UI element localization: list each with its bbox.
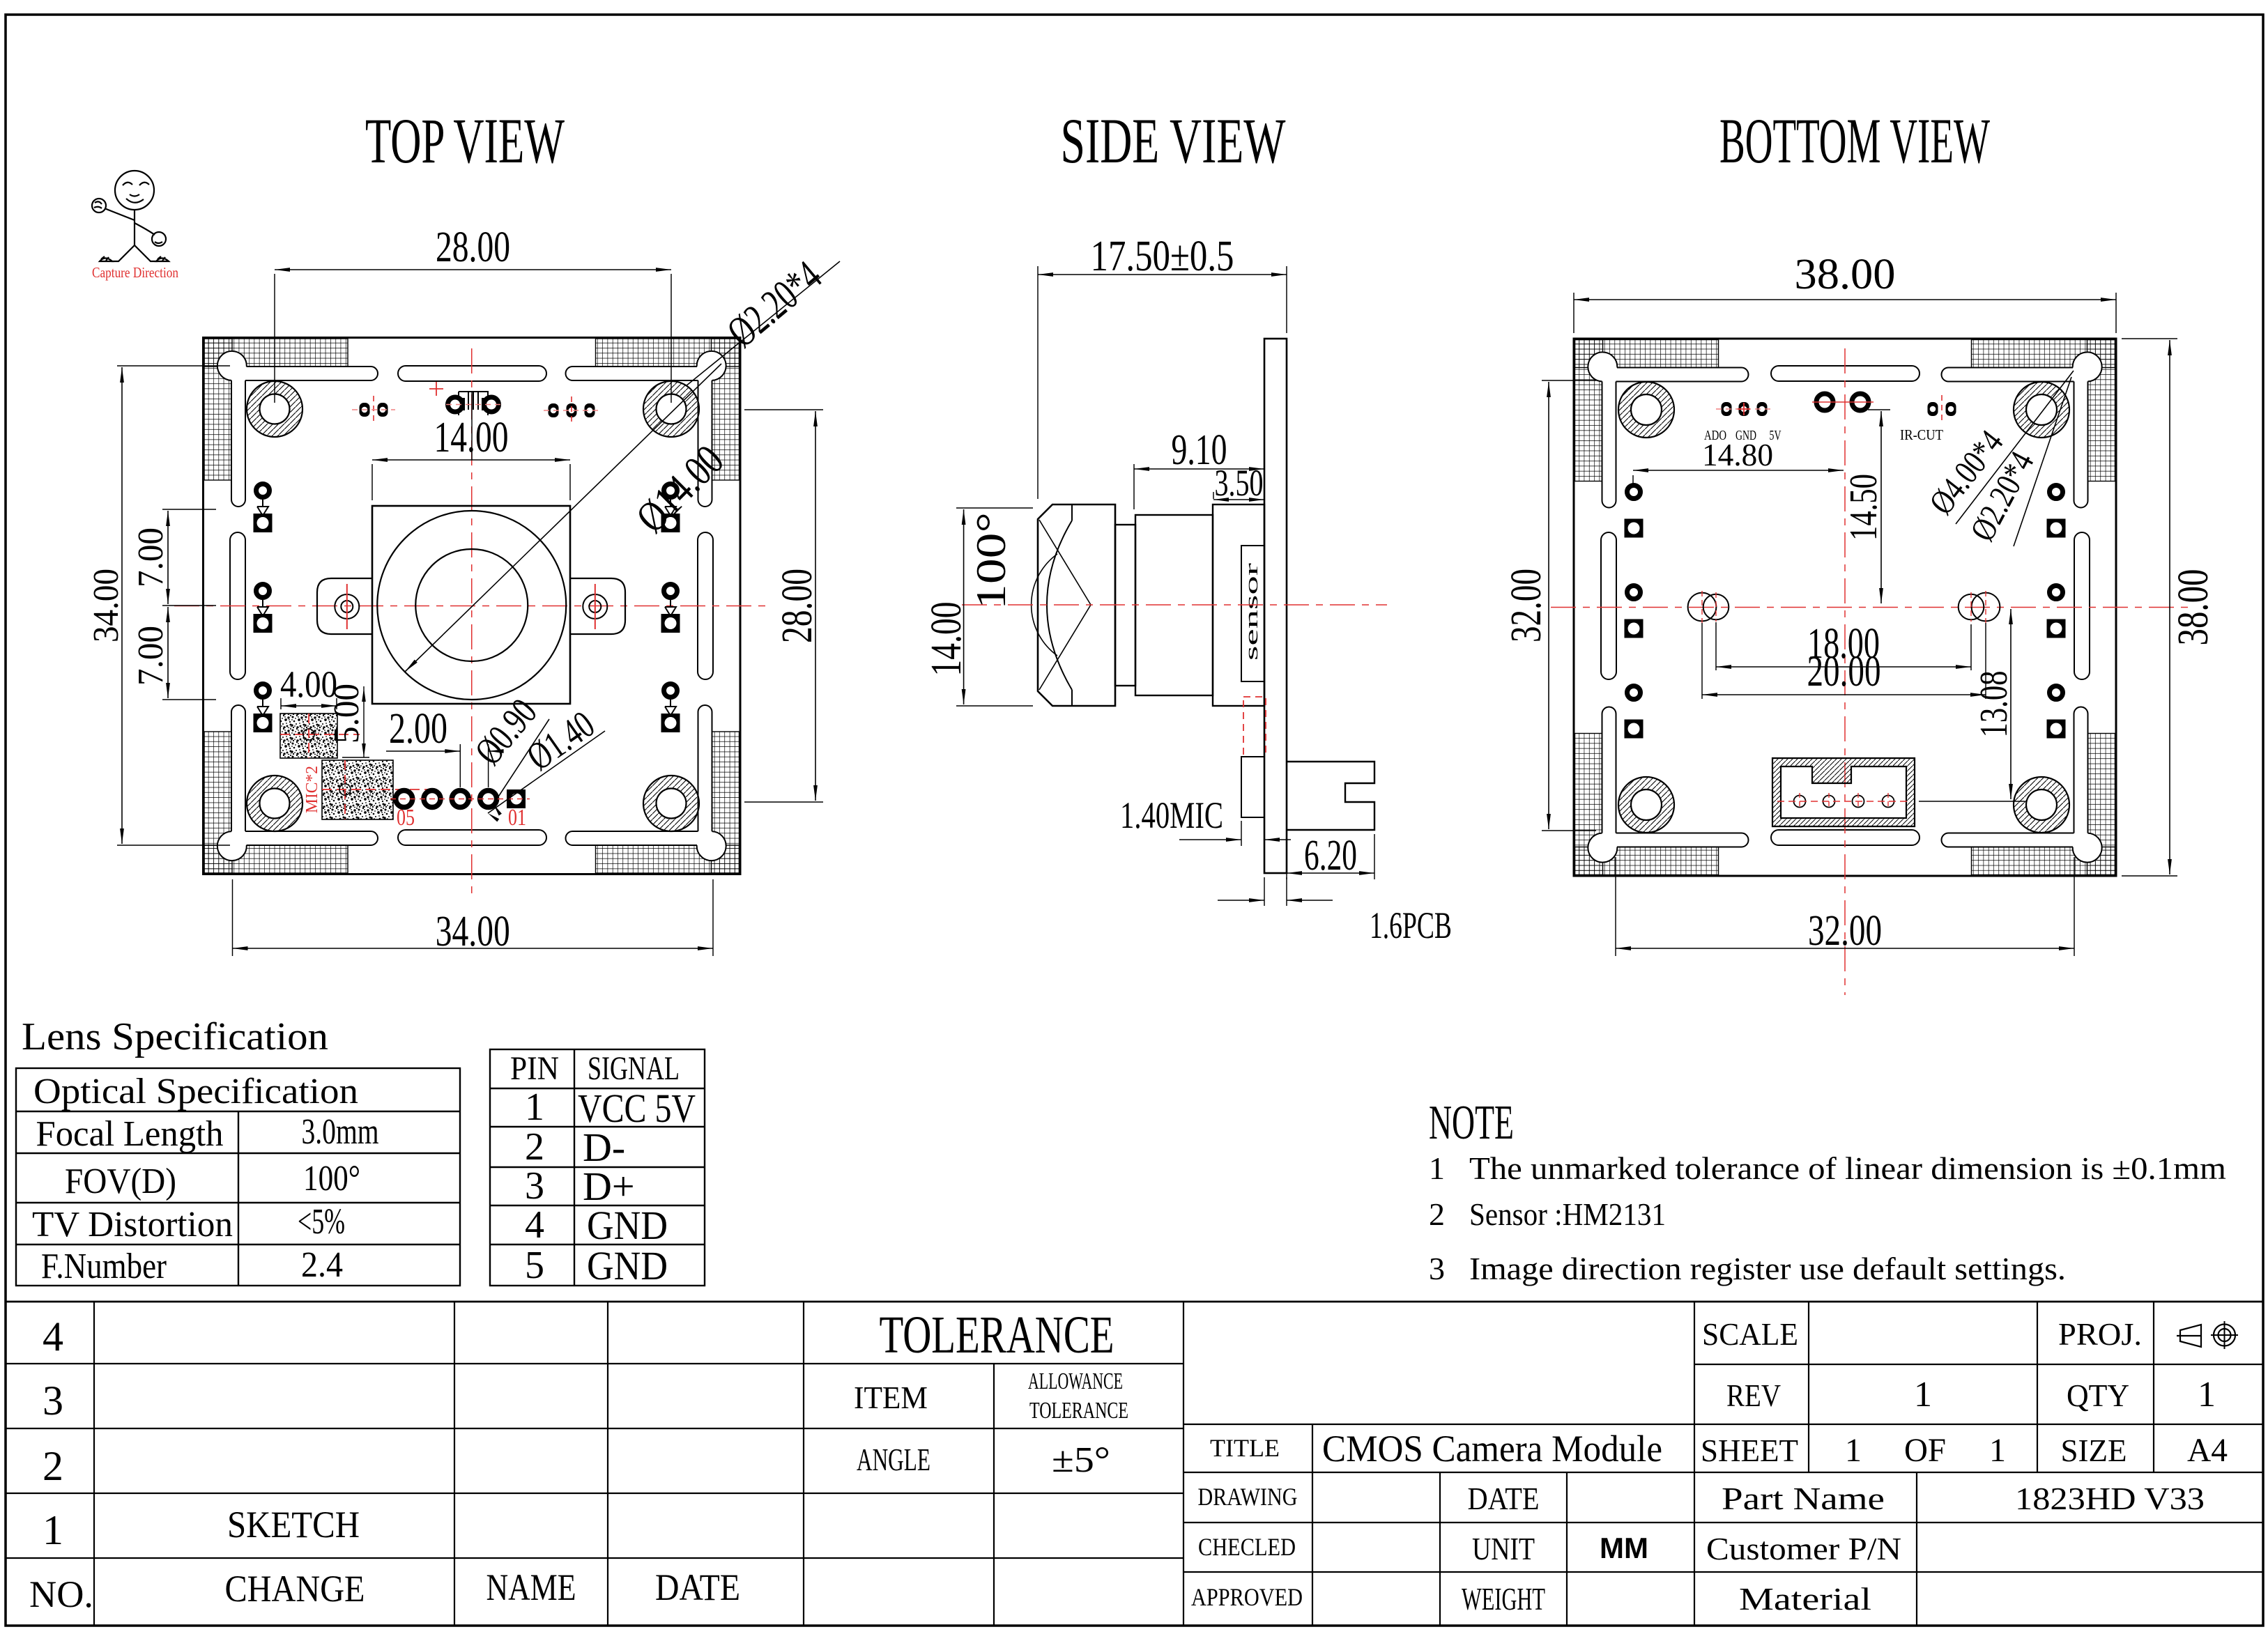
svg-text:A4: A4 xyxy=(2187,1432,2228,1469)
svg-text:TV Distortion: TV Distortion xyxy=(32,1205,233,1244)
svg-text:Part Name: Part Name xyxy=(1722,1481,1885,1516)
svg-text:1.6PCB: 1.6PCB xyxy=(1370,904,1452,946)
svg-text:BOTTOM VIEW: BOTTOM VIEW xyxy=(1719,105,1990,176)
svg-text:UNIT: UNIT xyxy=(1472,1531,1535,1566)
svg-text:TOLERANCE: TOLERANCE xyxy=(1029,1398,1128,1424)
svg-text:MIC*2: MIC*2 xyxy=(303,766,321,813)
svg-text:3: 3 xyxy=(525,1164,544,1208)
svg-text:TOLERANCE: TOLERANCE xyxy=(880,1306,1114,1364)
svg-text:TOP VIEW: TOP VIEW xyxy=(365,105,565,176)
svg-text:TITLE: TITLE xyxy=(1210,1434,1280,1462)
svg-text:3.50: 3.50 xyxy=(1215,462,1264,504)
svg-text:14.80: 14.80 xyxy=(1702,437,1773,472)
svg-text:Capture Direction: Capture Direction xyxy=(92,264,178,281)
svg-text:1: 1 xyxy=(1845,1432,1862,1469)
svg-text:ITEM: ITEM xyxy=(854,1380,928,1415)
svg-text:FOV(D): FOV(D) xyxy=(65,1162,176,1201)
svg-text:100°: 100° xyxy=(303,1159,360,1198)
svg-text:1.40MIC: 1.40MIC xyxy=(1120,794,1223,836)
svg-text:05: 05 xyxy=(397,805,415,831)
svg-text:NOTE: NOTE xyxy=(1429,1096,1514,1150)
svg-text:1: 1 xyxy=(1914,1375,1932,1415)
svg-text:7.00: 7.00 xyxy=(131,527,171,587)
svg-text:ANGLE: ANGLE xyxy=(857,1442,930,1477)
svg-text:SKETCH: SKETCH xyxy=(227,1504,360,1546)
svg-text:1: 1 xyxy=(1989,1432,2006,1469)
svg-text:GND: GND xyxy=(587,1243,668,1288)
svg-text:Focal Length: Focal Length xyxy=(36,1114,224,1154)
svg-text:SHEET: SHEET xyxy=(1701,1433,1798,1468)
svg-text:NO.: NO. xyxy=(29,1573,93,1615)
svg-text:28.00: 28.00 xyxy=(774,569,821,643)
svg-text:32.00: 32.00 xyxy=(1808,907,1882,955)
svg-text:Image direction register use d: Image direction register use default set… xyxy=(1469,1251,2066,1286)
svg-text:±5°: ±5° xyxy=(1052,1440,1110,1480)
svg-text:IR-CUT: IR-CUT xyxy=(1900,426,1943,443)
svg-text:Lens Specification: Lens Specification xyxy=(22,1015,328,1058)
svg-text:4: 4 xyxy=(43,1313,63,1359)
svg-text:OF: OF xyxy=(1904,1432,1946,1469)
svg-text:3: 3 xyxy=(43,1378,63,1424)
svg-text:Customer P/N: Customer P/N xyxy=(1706,1531,1901,1566)
svg-text:QTY: QTY xyxy=(2067,1378,2129,1413)
svg-text:4: 4 xyxy=(525,1203,544,1247)
svg-text:3: 3 xyxy=(1429,1251,1445,1286)
svg-text:34.00: 34.00 xyxy=(436,908,510,955)
svg-text:1: 1 xyxy=(2198,1375,2216,1415)
svg-text:CHECLED: CHECLED xyxy=(1198,1533,1296,1561)
svg-text:CHANGE: CHANGE xyxy=(225,1568,365,1610)
svg-text:CMOS Camera Module: CMOS Camera Module xyxy=(1322,1428,1662,1470)
svg-text:38.00: 38.00 xyxy=(2170,569,2217,646)
svg-text:1: 1 xyxy=(525,1086,544,1129)
svg-text:38.00: 38.00 xyxy=(1795,251,1896,298)
svg-text:5.00: 5.00 xyxy=(327,684,367,743)
svg-text:1823HD V33: 1823HD V33 xyxy=(2015,1481,2205,1516)
svg-text:GND: GND xyxy=(587,1203,668,1248)
svg-text:SCALE: SCALE xyxy=(1702,1316,1798,1352)
svg-text:<5%: <5% xyxy=(298,1202,345,1242)
svg-text:20.00: 20.00 xyxy=(1807,648,1881,695)
svg-text:28.00: 28.00 xyxy=(436,224,510,271)
svg-text:3.0mm: 3.0mm xyxy=(302,1112,379,1152)
svg-text:100°: 100° xyxy=(968,512,1014,610)
svg-text:14.00: 14.00 xyxy=(923,602,970,677)
svg-text:ALLOWANCE: ALLOWANCE xyxy=(1028,1369,1123,1394)
svg-text:13.08: 13.08 xyxy=(1972,671,2016,738)
svg-text:2: 2 xyxy=(525,1125,544,1169)
svg-text:14.00: 14.00 xyxy=(434,414,509,461)
svg-text:1: 1 xyxy=(1429,1150,1445,1186)
svg-text:NAME: NAME xyxy=(486,1566,576,1608)
svg-text:SIZE: SIZE xyxy=(2061,1433,2127,1468)
svg-text:DATE: DATE xyxy=(1468,1481,1540,1516)
svg-text:REV: REV xyxy=(1726,1378,1781,1413)
svg-text:SIDE VIEW: SIDE VIEW xyxy=(1061,105,1286,176)
svg-text:MM: MM xyxy=(1600,1532,1648,1564)
svg-text:Material: Material xyxy=(1739,1581,1871,1617)
svg-text:Optical Specification: Optical Specification xyxy=(33,1072,358,1111)
svg-text:sensor: sensor xyxy=(1241,562,1262,661)
svg-text:2.4: 2.4 xyxy=(301,1245,343,1285)
svg-text:6.20: 6.20 xyxy=(1304,832,1357,879)
svg-text:SIGNAL: SIGNAL xyxy=(588,1050,680,1087)
svg-text:2: 2 xyxy=(1429,1196,1445,1232)
svg-text:PIN: PIN xyxy=(510,1050,559,1087)
svg-text:2: 2 xyxy=(43,1443,63,1489)
svg-text:5: 5 xyxy=(525,1244,544,1287)
svg-text:17.50±0.5: 17.50±0.5 xyxy=(1091,233,1234,280)
svg-text:APPROVED: APPROVED xyxy=(1191,1583,1303,1611)
svg-text:34.00: 34.00 xyxy=(86,569,126,642)
svg-text:32.00: 32.00 xyxy=(1503,569,1550,642)
svg-text:DRAWING: DRAWING xyxy=(1198,1483,1298,1511)
svg-text:Sensor :HM2131: Sensor :HM2131 xyxy=(1469,1196,1666,1232)
svg-text:WEIGHT: WEIGHT xyxy=(1462,1581,1545,1617)
svg-text:2.00: 2.00 xyxy=(389,705,447,753)
svg-text:The unmarked tolerance of line: The unmarked tolerance of linear dimensi… xyxy=(1469,1150,2226,1186)
svg-text:PROJ.: PROJ. xyxy=(2058,1316,2142,1352)
svg-text:14.50: 14.50 xyxy=(1842,474,1885,541)
svg-text:DATE: DATE xyxy=(655,1566,740,1608)
svg-text:01: 01 xyxy=(508,805,526,831)
svg-text:1: 1 xyxy=(43,1507,63,1553)
svg-text:7.00: 7.00 xyxy=(131,626,171,686)
svg-text:F.Number: F.Number xyxy=(41,1247,167,1286)
